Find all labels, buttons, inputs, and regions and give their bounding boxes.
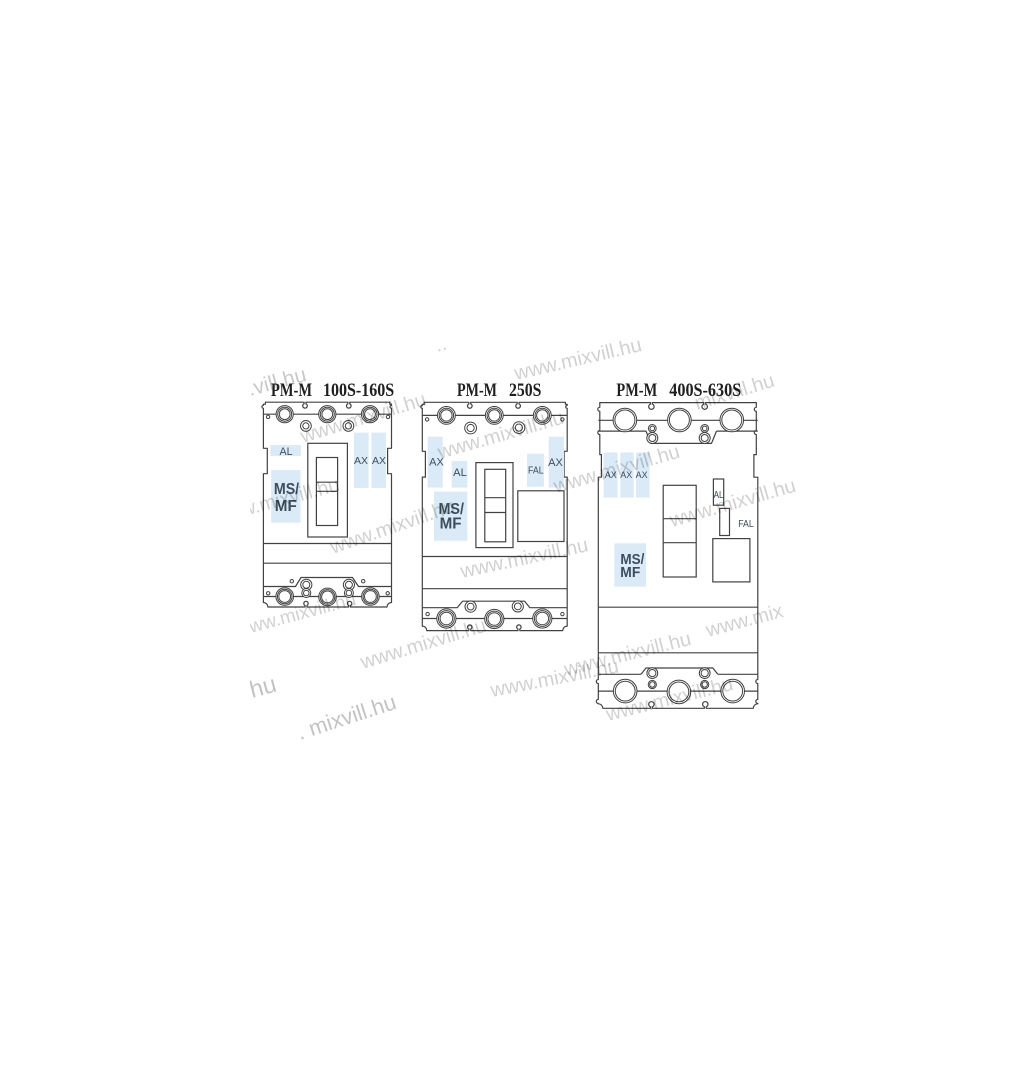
svg-text:AL: AL — [279, 446, 292, 458]
svg-text:AX: AX — [354, 455, 368, 467]
svg-text:AX: AX — [548, 457, 563, 469]
svg-text:MF: MF — [620, 565, 640, 581]
svg-text:250S: 250S — [509, 380, 541, 401]
svg-text:PM-M: PM-M — [616, 380, 657, 401]
svg-text:FAL: FAL — [738, 518, 754, 530]
svg-text:100S-160S: 100S-160S — [323, 380, 394, 401]
svg-text:FAL: FAL — [528, 465, 544, 477]
svg-text:AX: AX — [372, 455, 386, 467]
svg-text:AL: AL — [453, 467, 467, 479]
svg-text:PM-M: PM-M — [457, 380, 497, 401]
